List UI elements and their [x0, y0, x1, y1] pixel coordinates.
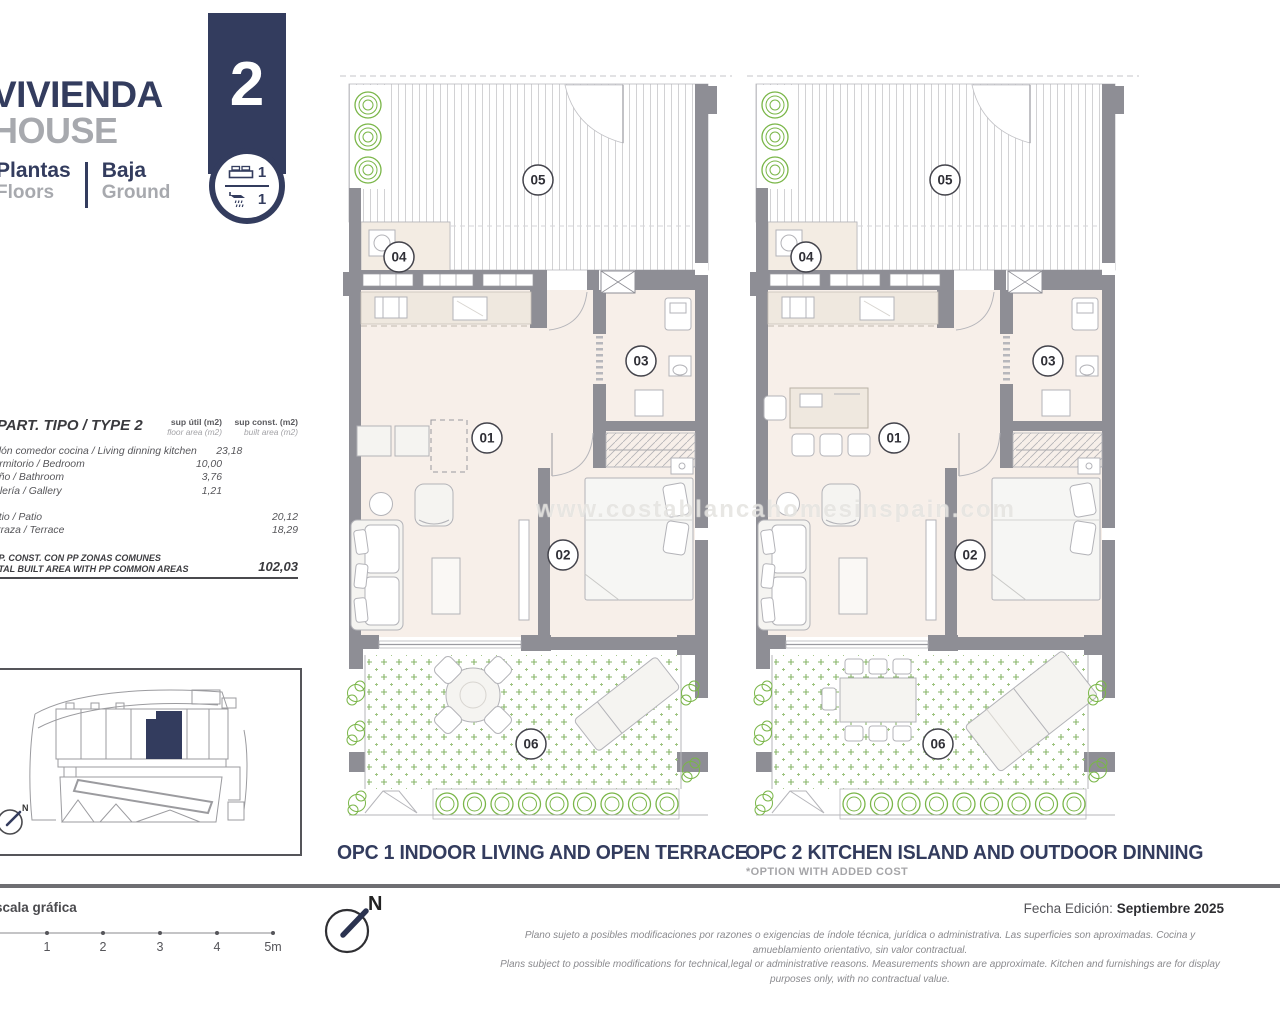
- plant-icon: [754, 721, 772, 745]
- scale-bar: 1 2 3 4 5m: [0, 924, 300, 965]
- room-label-05: 05: [930, 165, 960, 195]
- coffee-table: [432, 558, 460, 614]
- svg-text:1: 1: [44, 940, 51, 954]
- svg-text:02: 02: [555, 548, 570, 563]
- plant-icon: [347, 721, 365, 745]
- bathrooms-count: 1: [258, 191, 266, 208]
- caption-opc1: OPC 1 INDOOR LIVING AND OPEN TERRACE: [337, 842, 748, 865]
- patio-glass-door: [379, 641, 521, 648]
- svg-text:5m: 5m: [264, 940, 281, 954]
- floorplan-drawing: 01 02 03 04 05 06: [742, 58, 1144, 833]
- room-label-06: 06: [516, 729, 546, 759]
- sideboard: [519, 520, 529, 620]
- col1-header: sup útil (m2): [160, 417, 222, 427]
- plant-pots: [762, 92, 788, 183]
- bed: [585, 458, 693, 600]
- site-key-plan: N: [0, 668, 302, 856]
- room-label-04: 04: [791, 242, 821, 272]
- svg-text:04: 04: [391, 250, 407, 265]
- room-label-06: 06: [923, 729, 953, 759]
- room-label-04: 04: [384, 242, 414, 272]
- highlighted-unit: [146, 711, 182, 759]
- floor-value-es: Baja: [102, 160, 171, 182]
- bed: [992, 458, 1100, 600]
- page-subtitle: HOUSE: [0, 110, 118, 152]
- svg-text:N: N: [22, 803, 29, 813]
- svg-text:04: 04: [798, 250, 814, 265]
- plant-icon: [348, 791, 366, 815]
- svg-text:03: 03: [633, 354, 649, 369]
- plant-icon: [755, 791, 773, 815]
- divider: [85, 162, 88, 208]
- disclaimer-en: Plans subject to possible modifications …: [495, 958, 1225, 987]
- patio-steps: [365, 791, 417, 813]
- svg-text:03: 03: [1040, 354, 1056, 369]
- floorplan-opc2: 01 02 03 04 05 06: [742, 58, 1144, 833]
- room-label-03: 03: [1033, 346, 1063, 376]
- area-table-total: SUP. CONST. CON PP ZONAS COMUNES TOTAL B…: [0, 553, 298, 579]
- table-row: Terraza / Terrace 18,29: [0, 524, 298, 537]
- svg-text:05: 05: [937, 173, 953, 188]
- sideboard: [926, 520, 936, 620]
- col2-header: sup const. (m2): [222, 417, 298, 427]
- area-table: APART. TIPO / TYPE 2 sup útil (m2) floor…: [0, 417, 298, 579]
- unit-number: 2: [208, 49, 286, 120]
- room-label-01: 01: [472, 423, 502, 453]
- shower-icon: [228, 191, 254, 209]
- armchair: [822, 484, 860, 526]
- table-row: Galería / Gallery 1,21: [0, 485, 298, 498]
- area-table-title: APART. TIPO / TYPE 2: [0, 417, 160, 434]
- coffee-table: [839, 558, 867, 614]
- floor-value-en: Ground: [102, 182, 171, 204]
- svg-text:2: 2: [100, 940, 107, 954]
- north-letter: N: [368, 893, 382, 915]
- north-compass: N: [322, 892, 386, 959]
- area-table-rows: Salón comedor cocina / Living dinning ki…: [0, 445, 298, 537]
- sofa: [351, 520, 403, 630]
- armchair: [415, 484, 453, 526]
- sofa: [758, 520, 810, 630]
- svg-text:05: 05: [530, 173, 546, 188]
- side-table: [370, 493, 393, 516]
- table-row: Baño / Bathroom 3,76: [0, 471, 298, 484]
- svg-text:02: 02: [962, 548, 977, 563]
- table-row: Salón comedor cocina / Living dinning ki…: [0, 445, 298, 458]
- floorplan-opc1: 01 02 03 04 05 06: [335, 58, 737, 833]
- plant-icon: [347, 681, 365, 705]
- svg-text:3: 3: [157, 940, 164, 954]
- bed-icon: [228, 164, 254, 180]
- total-value: 102,03: [222, 559, 298, 574]
- room-label-01: 01: [879, 423, 909, 453]
- dining-chair: [395, 426, 429, 456]
- caption-opc2-note: *OPTION WITH ADDED COST: [746, 866, 908, 878]
- kitchen-counter: [361, 292, 531, 326]
- floors-block: Plantas Floors Baja Ground: [0, 160, 170, 208]
- disclaimer-es: Plano sujeto a posibles modificaciones p…: [495, 929, 1225, 958]
- siteplan-north-icon: N: [0, 803, 29, 834]
- patio-steps: [772, 791, 824, 813]
- patio-glass-door: [786, 641, 928, 648]
- table-row: Dormitorio / Bedroom 10,00: [0, 458, 298, 471]
- svg-text:06: 06: [930, 737, 946, 752]
- scale-label: Escala gráfica: [0, 900, 77, 915]
- floorplan-drawing: 01 02 03 04 05 06: [335, 58, 737, 833]
- dining-chair: [357, 426, 391, 456]
- svg-text:01: 01: [479, 431, 495, 446]
- table-row: Patio / Patio 20,12: [0, 511, 298, 524]
- plant-pots: [355, 92, 381, 183]
- disclaimer: Plano sujeto a posibles modificaciones p…: [495, 929, 1225, 987]
- floors-label-en: Floors: [0, 182, 71, 204]
- room-label-03: 03: [626, 346, 656, 376]
- divider: [0, 884, 1280, 888]
- edition-date: Fecha Edición: Septiembre 2025: [1024, 901, 1224, 916]
- room-label-05: 05: [523, 165, 553, 195]
- rooms-badge: 1 1: [215, 154, 279, 218]
- room-label-02: 02: [955, 540, 985, 570]
- floors-label-es: Plantas: [0, 160, 71, 182]
- kitchen-counter: [768, 292, 938, 326]
- side-table: [777, 493, 800, 516]
- svg-text:06: 06: [523, 737, 539, 752]
- bedrooms-count: 1: [258, 164, 266, 181]
- svg-text:01: 01: [886, 431, 902, 446]
- svg-text:4: 4: [214, 940, 221, 954]
- room-label-02: 02: [548, 540, 578, 570]
- plant-icon: [754, 681, 772, 705]
- caption-opc2: OPC 2 KITCHEN ISLAND AND OUTDOOR DINNING: [745, 842, 1203, 865]
